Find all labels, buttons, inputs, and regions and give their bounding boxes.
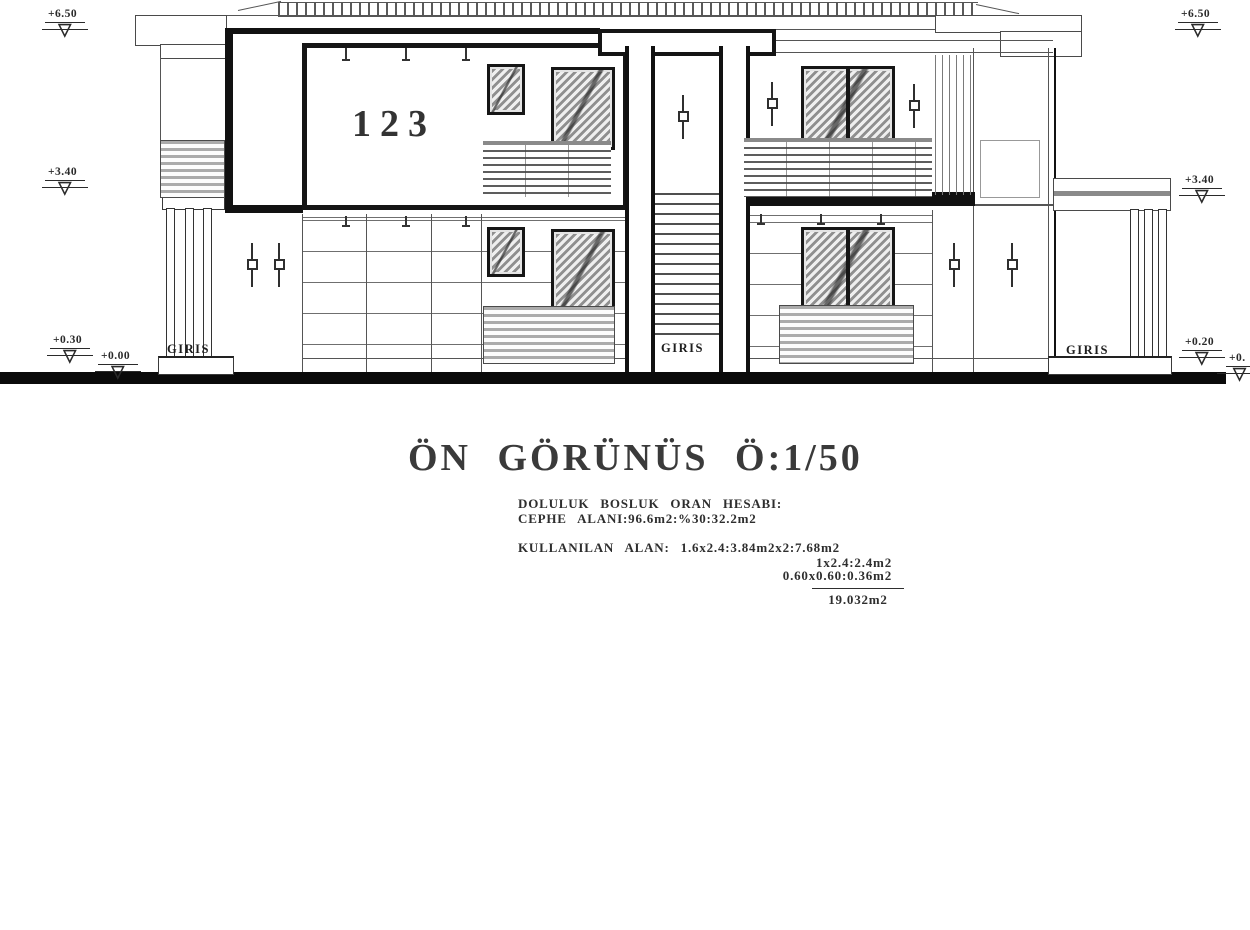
lower-right-louver-screen bbox=[779, 305, 914, 364]
curtain-wall-mullion bbox=[431, 214, 432, 372]
left-eave-step bbox=[160, 44, 227, 59]
note-used-area: KULLANILAN ALAN: 1.6x2.4:3.84m2x2:7.68m2 bbox=[518, 540, 840, 556]
roof-tile-slope-right bbox=[976, 4, 1019, 14]
right-parapet-line-2 bbox=[742, 52, 1053, 53]
level-triangle-icon: ▽ bbox=[1182, 189, 1222, 204]
left-eave bbox=[135, 15, 227, 46]
left-porch-louver-block bbox=[160, 140, 225, 198]
wall-light-icon bbox=[766, 82, 778, 126]
drawing-title: ÖN GÖRÜNÜS Ö:1/50 bbox=[408, 436, 863, 480]
porch-post bbox=[203, 208, 212, 358]
lower-left-louver-screen bbox=[483, 306, 615, 364]
elevation-marker-000-left: +0.00 ▽ bbox=[98, 350, 138, 380]
hanger-tick bbox=[820, 214, 822, 224]
level-triangle-icon: ▽ bbox=[98, 365, 138, 380]
level-triangle-icon: ▽ bbox=[45, 181, 85, 196]
upper-left-balcony-railing bbox=[483, 141, 611, 197]
right-eave-step bbox=[1000, 31, 1082, 57]
porch-post bbox=[1158, 209, 1167, 359]
upper-right-balcony-railing bbox=[744, 138, 932, 197]
right-porch-canopy bbox=[1053, 178, 1171, 211]
upper-double-window bbox=[801, 66, 895, 148]
hanger-tick bbox=[760, 214, 762, 224]
porch-post bbox=[185, 208, 194, 358]
elevation-marker-030-left: +0.30 ▽ bbox=[50, 334, 90, 364]
wall-light-icon bbox=[246, 243, 258, 287]
wall-light-icon bbox=[948, 243, 960, 287]
lower-large-window bbox=[551, 229, 615, 318]
porch-post bbox=[1144, 209, 1153, 359]
right-wall-inner-line bbox=[1048, 48, 1049, 372]
elevation-marker-clipped-right: +0. ▽ bbox=[1226, 352, 1250, 382]
wall-light-icon bbox=[273, 243, 285, 287]
stair-tower-column-right bbox=[719, 46, 750, 372]
hanger-tick bbox=[405, 48, 407, 60]
note-total-area: 19.032m2 bbox=[812, 592, 904, 608]
stair-treads bbox=[647, 193, 719, 343]
window-mullion bbox=[846, 68, 850, 146]
entrance-label-left: GIRIS bbox=[167, 342, 210, 357]
elevation-marker-650-left: +6.50 ▽ bbox=[45, 8, 85, 38]
lower-double-window bbox=[801, 227, 895, 314]
right-sill-panel bbox=[980, 140, 1040, 198]
hanger-tick bbox=[880, 214, 882, 224]
upper-large-window bbox=[551, 67, 615, 150]
elevation-marker-340-left: +3.40 ▽ bbox=[45, 166, 85, 196]
porch-post bbox=[1130, 209, 1139, 359]
entrance-label-center: GIRIS bbox=[661, 341, 704, 356]
hanger-tick bbox=[405, 216, 407, 226]
elevation-marker-340-right: +3.40 ▽ bbox=[1182, 174, 1222, 204]
curtain-wall-mullion bbox=[481, 214, 482, 372]
front-elevation-drawing: 123 GIRIS GIRIS bbox=[0, 0, 1250, 930]
right-porch-plinth bbox=[1048, 356, 1172, 375]
roof-tile-slope-left bbox=[238, 1, 281, 11]
level-triangle-icon: ▽ bbox=[50, 349, 90, 364]
hanger-tick bbox=[465, 48, 467, 60]
lower-small-window bbox=[487, 227, 525, 277]
elevation-marker-020-right: +0.20 ▽ bbox=[1182, 336, 1222, 366]
level-triangle-icon: ▽ bbox=[1182, 351, 1222, 366]
upper-small-window bbox=[487, 64, 525, 115]
hanger-tick bbox=[465, 216, 467, 226]
wall-light-icon bbox=[677, 95, 689, 139]
note-used-area-3: 0.60x0.60:0.36m2 bbox=[518, 568, 892, 584]
level-triangle-icon: ▽ bbox=[1178, 23, 1218, 38]
note-facade-area: CEPHE ALANI:96.6m2:%30:32.2m2 bbox=[518, 511, 757, 527]
elevation-marker-650-right: +6.50 ▽ bbox=[1178, 8, 1218, 38]
porch-post bbox=[166, 208, 175, 358]
window-mullion bbox=[846, 229, 850, 312]
left-wall-pier bbox=[225, 32, 233, 213]
right-parapet-line-1 bbox=[768, 40, 1053, 41]
left-porch-plinth bbox=[158, 356, 234, 375]
downpipe-lines bbox=[935, 55, 975, 195]
wall-light-icon bbox=[1006, 243, 1018, 287]
room-number-label: 123 bbox=[352, 102, 436, 146]
left-porch-beam bbox=[225, 205, 303, 213]
parapet-beam-left bbox=[225, 28, 600, 34]
level-triangle-icon: ▽ bbox=[45, 23, 85, 38]
stair-tower-column-left bbox=[625, 46, 655, 372]
hanger-tick bbox=[345, 216, 347, 226]
left-porch-edge-line bbox=[160, 57, 161, 140]
level-triangle-icon: ▽ bbox=[1226, 367, 1250, 382]
curtain-wall-mullion bbox=[366, 214, 367, 372]
hanger-tick bbox=[345, 48, 347, 60]
wall-light-icon bbox=[908, 84, 920, 128]
floor-slab-line-extension bbox=[975, 204, 1053, 206]
entrance-label-right: GIRIS bbox=[1066, 343, 1109, 358]
note-heading: DOLULUK BOSLUK ORAN HESABI: bbox=[518, 496, 782, 512]
canopy-fascia-band bbox=[1054, 191, 1170, 196]
total-rule-line bbox=[812, 588, 904, 589]
